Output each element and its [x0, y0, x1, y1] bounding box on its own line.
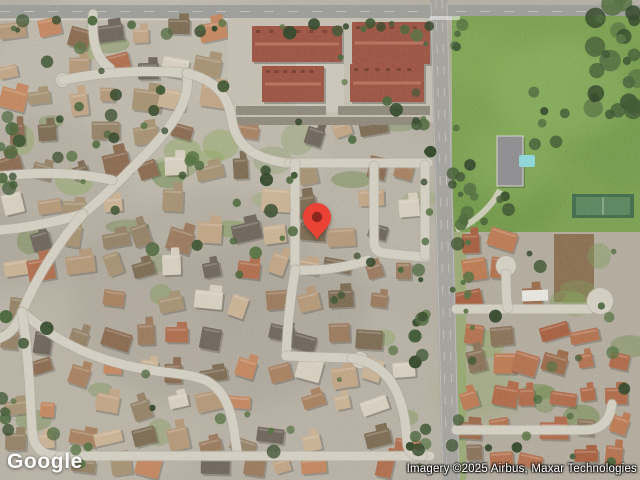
map-attribution: Imagery ©2025 Airbus, Maxar Technologies	[407, 463, 637, 475]
map-viewport[interactable]: Google Imagery ©2025 Airbus, Maxar Techn…	[0, 0, 640, 480]
satellite-imagery	[0, 0, 640, 480]
google-logo[interactable]: Google	[7, 450, 83, 474]
pin-dot	[312, 212, 322, 222]
map-pin-icon[interactable]	[303, 203, 331, 240]
